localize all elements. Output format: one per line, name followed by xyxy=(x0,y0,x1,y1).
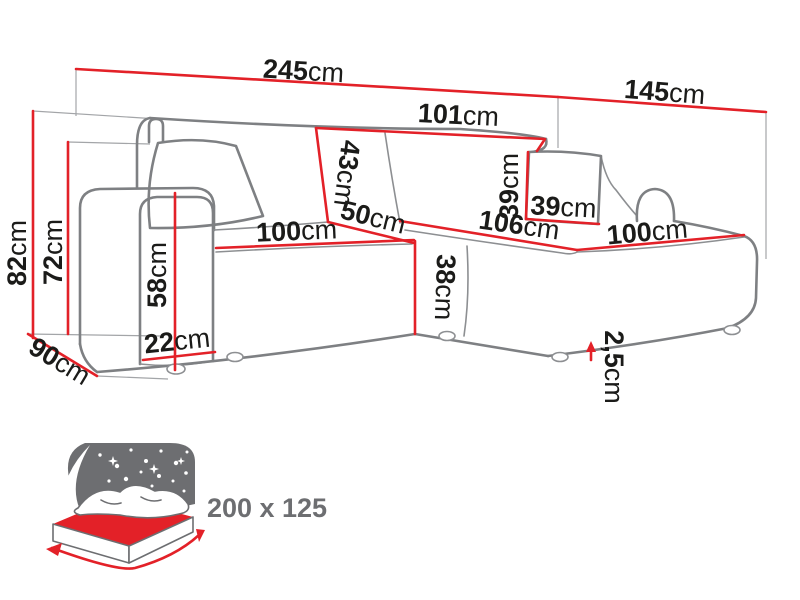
diagram-canvas: 245cm 145cm 82cm 72cm 90cm 101cm 43cm 50… xyxy=(0,0,800,600)
dim-label-seat-width: 100cm xyxy=(255,214,337,248)
sleeping-size-label: 200 x 125 xyxy=(207,493,327,523)
ext-side-depth-front xyxy=(97,376,168,379)
seat-corner-edge xyxy=(464,246,468,336)
sofa-foot xyxy=(227,353,243,362)
ext-total-height-top xyxy=(33,111,158,119)
dim-label-side-depth: 90cm xyxy=(24,331,96,391)
dimension-diagram: 245cm 145cm 82cm 72cm 90cm 101cm 43cm 50… xyxy=(0,0,800,600)
dim-label-frame-height: 72cm xyxy=(38,219,68,285)
sofa-foot xyxy=(439,332,455,341)
arrowhead-left xyxy=(46,543,62,556)
dim-label-total-height: 82cm xyxy=(2,220,32,286)
dim-line-backrest-height xyxy=(316,128,328,222)
dim-label-armrest-height: 58cm xyxy=(142,242,172,308)
right-back-edge xyxy=(601,156,637,216)
dim-label-total-width: 245cm xyxy=(262,54,345,89)
back-pillow-left xyxy=(149,140,263,228)
dim-label-cushion-height: 39cm xyxy=(494,153,524,219)
sofa-headrest-strip xyxy=(149,119,163,142)
dim-label-chaise-depth: 145cm xyxy=(623,74,706,110)
dim-label-seat-height: 38cm xyxy=(429,254,461,321)
sleeping-function-icon xyxy=(46,443,205,569)
chaise-right-corner xyxy=(728,236,757,328)
dim-label-feet-height: 2,5cm xyxy=(599,330,629,404)
chaise-bottom-front-edge xyxy=(548,328,728,356)
sofa-foot xyxy=(724,326,740,335)
dim-label-cushion-width: 39cm xyxy=(530,190,598,223)
dim-label-backrest-width: 101cm xyxy=(417,98,499,132)
sofa-foot xyxy=(552,353,568,362)
chaise-bottom-left-edge xyxy=(415,334,548,356)
feet-height-arrowhead xyxy=(586,341,596,352)
